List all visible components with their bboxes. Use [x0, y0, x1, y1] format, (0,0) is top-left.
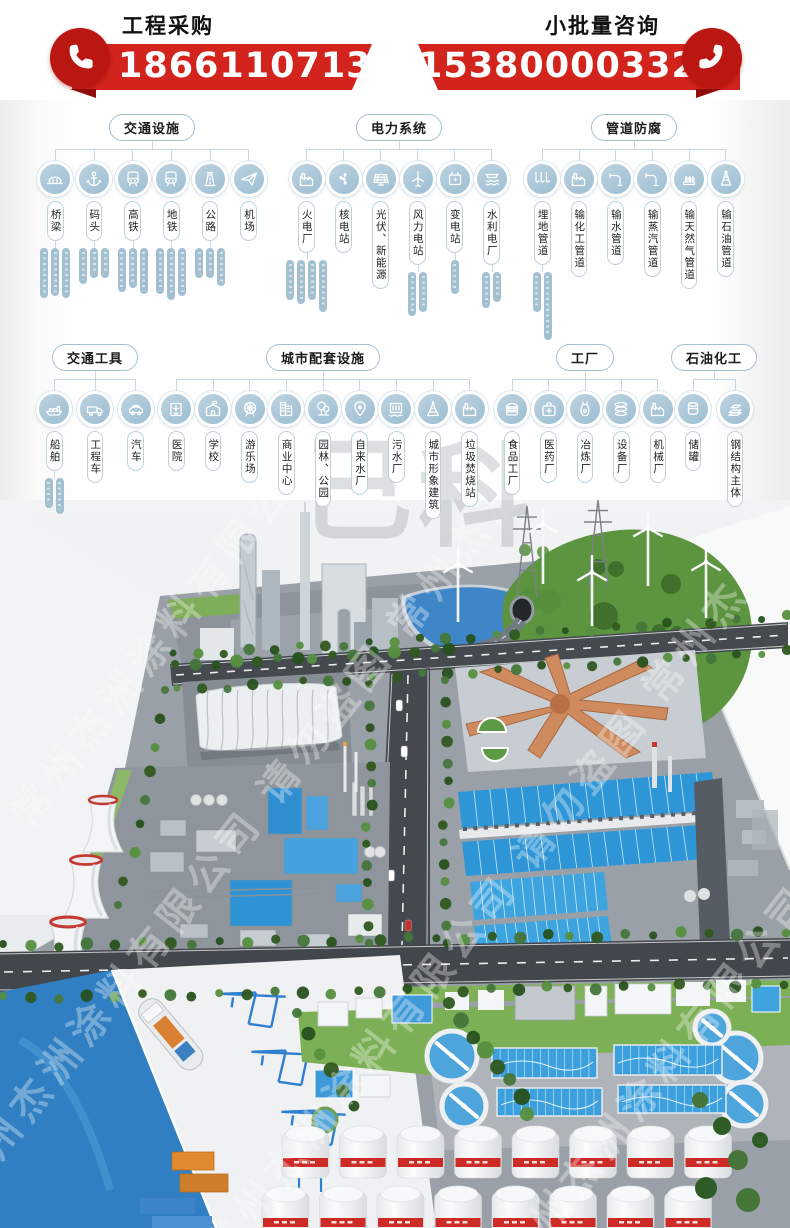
item-埋地管道: 埋地管道 — [524, 149, 561, 340]
item-label: 船舶 — [46, 431, 63, 471]
flame-icon — [679, 169, 699, 189]
section-城市配套设施: 城市配套设施医院学校游乐场商业中心园林、公园自来水厂污水厂城市形象建筑垃圾焚烧站 — [158, 344, 488, 519]
item-储罐: 储罐 — [672, 379, 714, 507]
item-label: 光伏、新能源 — [372, 201, 389, 289]
item-circle — [524, 161, 560, 197]
item-水利电厂: 水利电厂 — [473, 149, 510, 316]
tree-icon — [313, 399, 333, 419]
anchor-icon — [84, 169, 104, 189]
item-汽车: 汽车 — [115, 379, 156, 514]
item-label: 火电厂 — [298, 201, 315, 253]
item-circle — [708, 161, 744, 197]
phone-disc-right — [682, 28, 742, 88]
ribbon-fold — [696, 89, 722, 98]
item-circle — [305, 391, 341, 427]
item-circle — [326, 161, 362, 197]
phone-icon — [695, 41, 729, 75]
mall-icon — [276, 399, 296, 419]
solar-icon — [371, 169, 391, 189]
pipe-icon — [642, 169, 662, 189]
section-title: 电力系统 — [356, 114, 442, 141]
sub-product-capsule — [51, 248, 59, 296]
phone-ribbon-left[interactable]: 18661107130 — [72, 44, 372, 90]
item-地铁: 地铁 — [152, 149, 191, 300]
item-学校: 学校 — [195, 379, 232, 519]
item-光伏、新能源: 光伏、新能源 — [362, 149, 399, 316]
item-公路: 公路 — [191, 149, 230, 300]
item-label: 医药厂 — [540, 431, 557, 483]
phone-icon — [63, 41, 97, 75]
item-label: 码头 — [86, 201, 103, 241]
item-circle — [717, 391, 753, 427]
item-circle — [598, 161, 634, 197]
banner-small-batch-consult: 小批量咨询 15380000332 — [408, 0, 750, 100]
item-circle — [37, 161, 73, 197]
item-circle — [231, 161, 267, 197]
sub-product-capsule — [167, 248, 175, 300]
item-label: 埋地管道 — [534, 201, 551, 265]
sub-product-capsule — [118, 248, 126, 292]
burger-icon — [502, 399, 522, 419]
item-circle — [153, 161, 189, 197]
application-category-diagram: 己 科 交通设施桥梁码头高铁地铁公路机场电力系统火电厂核电站光伏、新能源风力电站… — [0, 100, 790, 500]
plane-icon — [239, 169, 259, 189]
sub-product-capsule — [206, 248, 214, 278]
item-垃圾焚烧站: 垃圾焚烧站 — [451, 379, 488, 519]
steel-icon — [725, 399, 745, 419]
item-label: 垃圾焚烧站 — [461, 431, 478, 507]
sub-product-capsule — [419, 272, 427, 312]
furnace-icon — [575, 399, 595, 419]
section-石油化工: 石油化工储罐钢结构主体 — [672, 344, 756, 507]
item-circle — [415, 391, 451, 427]
item-circle — [195, 391, 231, 427]
item-label: 风力电站 — [409, 201, 426, 265]
item-label: 冶炼厂 — [577, 431, 594, 483]
item-circle — [76, 161, 112, 197]
promo-page: 工程采购 18661107130 小批量咨询 15380000332 己 科 交… — [0, 0, 790, 1228]
item-label: 污水厂 — [388, 431, 405, 483]
sub-product-capsule — [286, 260, 294, 300]
item-火电厂: 火电厂 — [288, 149, 325, 316]
item-输蒸汽管道: 输蒸汽管道 — [634, 149, 671, 340]
item-label: 地铁 — [163, 201, 180, 241]
phone-number-left[interactable]: 18661107130 — [72, 46, 326, 86]
item-label: 储罐 — [685, 431, 702, 471]
sub-product-capsule — [90, 248, 98, 278]
item-circle — [289, 161, 325, 197]
item-label: 高铁 — [124, 201, 141, 241]
section-title: 石油化工 — [671, 344, 757, 371]
item-label: 输天然气管道 — [681, 201, 698, 289]
item-钢结构主体: 钢结构主体 — [714, 379, 756, 507]
item-circle — [437, 161, 473, 197]
item-circle — [494, 391, 530, 427]
item-label: 核电站 — [335, 201, 352, 253]
item-风力电站: 风力电站 — [399, 149, 436, 316]
item-变电站: 变电站 — [436, 149, 473, 316]
section-title: 工厂 — [556, 344, 614, 371]
item-label: 输石油管道 — [717, 201, 734, 277]
item-label: 公路 — [202, 201, 219, 241]
section-交通设施: 交通设施桥梁码头高铁地铁公路机场 — [36, 114, 268, 300]
item-医药厂: 医药厂 — [530, 379, 566, 495]
item-label: 桥梁 — [47, 201, 64, 241]
item-circle — [640, 391, 676, 427]
item-label: 汽车 — [127, 431, 144, 471]
item-label: 机械厂 — [650, 431, 667, 483]
banner-right-title: 小批量咨询 — [545, 10, 660, 40]
item-园林、公园: 园林、公园 — [305, 379, 342, 519]
item-circle — [567, 391, 603, 427]
item-label: 学校 — [205, 431, 222, 471]
item-船舶: 船舶 — [34, 379, 75, 514]
item-circle — [603, 391, 639, 427]
city-model-photo: 常州杰洲涂料有限公司 请勿盗图 常州杰洲涂料有限公司 请勿盗图 常州杰洲涂料有限… — [0, 500, 790, 1228]
sub-product-capsule — [217, 248, 225, 286]
tower-icon — [423, 399, 443, 419]
item-circle — [400, 161, 436, 197]
item-circle — [671, 161, 707, 197]
item-circle — [115, 161, 151, 197]
train-icon — [123, 169, 143, 189]
sub-product-capsule — [56, 478, 64, 514]
ship-icon — [44, 399, 64, 419]
item-污水厂: 污水厂 — [378, 379, 415, 519]
sub-product-capsule — [40, 248, 48, 298]
city-model-illustration: 常州杰洲涂料有限公司 请勿盗图 常州杰洲涂料有限公司 请勿盗图 常州杰洲涂料有限… — [0, 500, 790, 1228]
sub-product-capsule — [156, 248, 164, 294]
medbag-icon — [539, 399, 559, 419]
disks-icon — [611, 399, 631, 419]
item-circle — [675, 391, 711, 427]
sub-product-capsule — [45, 478, 53, 508]
item-circle — [118, 391, 154, 427]
fan-icon — [334, 169, 354, 189]
item-输水管道: 输水管道 — [597, 149, 634, 340]
banner-engineering-procurement: 工程采购 18661107130 — [40, 0, 360, 100]
item-城市形象建筑: 城市形象建筑 — [415, 379, 452, 519]
item-商业中心: 商业中心 — [268, 379, 305, 519]
item-circle — [158, 391, 194, 427]
sub-product-capsule — [533, 272, 541, 312]
item-circle — [634, 161, 670, 197]
tank-icon — [683, 399, 703, 419]
ribbon-fold — [70, 89, 96, 98]
pipe-icon — [606, 169, 626, 189]
item-输天然气管道: 输天然气管道 — [671, 149, 708, 340]
sub-product-capsule — [451, 260, 459, 294]
item-label: 钢结构主体 — [727, 431, 744, 507]
item-自来水厂: 自来水厂 — [341, 379, 378, 519]
section-电力系统: 电力系统火电厂核电站光伏、新能源风力电站变电站水利电厂 — [288, 114, 510, 316]
phone-number-right[interactable]: 15380000332 — [418, 46, 680, 86]
item-食品工厂: 食品工厂 — [494, 379, 530, 495]
road-icon — [200, 169, 220, 189]
factory-icon — [460, 399, 480, 419]
item-circle — [36, 391, 72, 427]
car-icon — [126, 399, 146, 419]
item-机械厂: 机械厂 — [640, 379, 676, 495]
item-circle — [531, 391, 567, 427]
item-label: 输化工管道 — [571, 201, 588, 277]
item-码头: 码头 — [75, 149, 114, 300]
school-icon — [203, 399, 223, 419]
item-label: 输蒸汽管道 — [644, 201, 661, 277]
item-输石油管道: 输石油管道 — [707, 149, 744, 340]
sub-product-capsule — [79, 248, 87, 284]
item-label: 变电站 — [446, 201, 463, 253]
sub-product-capsule — [129, 248, 137, 288]
item-label: 工程车 — [87, 431, 104, 483]
section-title: 交通工具 — [52, 344, 138, 371]
pin-icon — [350, 399, 370, 419]
section-title: 管道防腐 — [591, 114, 677, 141]
item-circle — [363, 161, 399, 197]
derrick-icon — [716, 169, 736, 189]
item-工程车: 工程车 — [75, 379, 116, 514]
item-circle — [77, 391, 113, 427]
section-交通工具: 交通工具船舶工程车汽车 — [34, 344, 156, 514]
pipes3-icon — [532, 169, 552, 189]
truck-icon — [85, 399, 105, 419]
item-label: 自来水厂 — [351, 431, 368, 495]
hospital-icon — [166, 399, 186, 419]
item-游乐场: 游乐场 — [231, 379, 268, 519]
item-label: 城市形象建筑 — [425, 431, 442, 519]
sub-product-capsule — [308, 260, 316, 300]
sub-product-capsule — [195, 248, 203, 278]
item-label: 医院 — [168, 431, 185, 471]
section-管道防腐: 管道防腐埋地管道输化工管道输水管道输蒸汽管道输天然气管道输石油管道 — [524, 114, 744, 340]
item-label: 园林、公园 — [315, 431, 332, 507]
item-冶炼厂: 冶炼厂 — [567, 379, 603, 495]
item-label: 商业中心 — [278, 431, 295, 495]
item-circle — [474, 161, 510, 197]
sub-product-capsule — [62, 248, 70, 298]
item-桥梁: 桥梁 — [36, 149, 75, 300]
sewage-icon — [386, 399, 406, 419]
item-label: 水利电厂 — [483, 201, 500, 265]
item-输化工管道: 输化工管道 — [561, 149, 598, 340]
ferris-icon — [240, 399, 260, 419]
item-circle — [192, 161, 228, 197]
sub-product-capsule — [408, 272, 416, 316]
section-title: 城市配套设施 — [266, 344, 380, 371]
item-核电站: 核电站 — [325, 149, 362, 316]
wind-icon — [408, 169, 428, 189]
sub-product-capsule — [297, 260, 305, 304]
bridge-icon — [45, 169, 65, 189]
item-机场: 机场 — [229, 149, 268, 300]
item-label: 游乐场 — [241, 431, 258, 483]
item-高铁: 高铁 — [113, 149, 152, 300]
item-circle — [452, 391, 488, 427]
train-icon — [161, 169, 181, 189]
item-设备厂: 设备厂 — [603, 379, 639, 495]
sub-product-capsule — [544, 272, 552, 340]
item-circle — [232, 391, 268, 427]
sub-product-capsule — [140, 248, 148, 294]
hydro-icon — [482, 169, 502, 189]
item-label: 设备厂 — [613, 431, 630, 483]
sub-product-capsule — [482, 272, 490, 308]
sub-product-capsule — [493, 272, 501, 302]
phone-disc-left — [50, 28, 110, 88]
sub-product-capsule — [101, 248, 109, 278]
banner-left-title: 工程采购 — [122, 10, 214, 40]
topbar: 工程采购 18661107130 小批量咨询 15380000332 — [0, 0, 790, 100]
factory-icon — [569, 169, 589, 189]
item-circle — [268, 391, 304, 427]
item-circle — [342, 391, 378, 427]
item-label: 输水管道 — [607, 201, 624, 265]
item-label: 食品工厂 — [504, 431, 521, 495]
item-label: 机场 — [240, 201, 257, 241]
factory-icon — [297, 169, 317, 189]
battery-icon — [445, 169, 465, 189]
item-circle — [561, 161, 597, 197]
item-circle — [378, 391, 414, 427]
sub-product-capsule — [178, 248, 186, 296]
factory-icon — [648, 399, 668, 419]
section-工厂: 工厂食品工厂医药厂冶炼厂设备厂机械厂 — [494, 344, 676, 495]
sub-product-capsule — [319, 260, 327, 312]
section-title: 交通设施 — [109, 114, 195, 141]
item-医院: 医院 — [158, 379, 195, 519]
